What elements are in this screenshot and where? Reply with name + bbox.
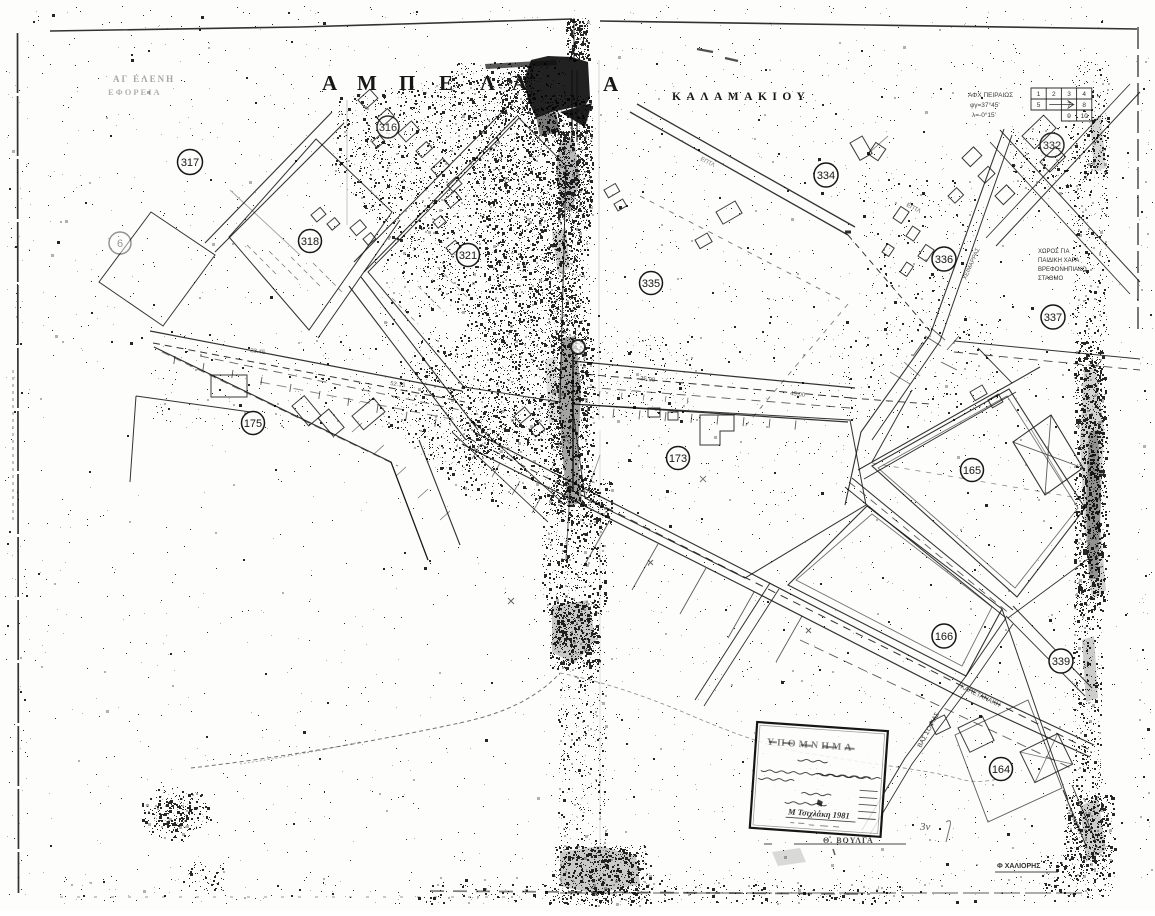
svg-text:7: 7 bbox=[1067, 102, 1071, 109]
svg-text:9: 9 bbox=[1067, 113, 1071, 120]
svg-text:ΑΦΧ ΠΕΙΡΑΙΩΣ: ΑΦΧ ΠΕΙΡΑΙΩΣ bbox=[968, 92, 1013, 99]
svg-text:Θ. ΒΟΥΛΓΑ: Θ. ΒΟΥΛΓΑ bbox=[823, 836, 874, 845]
svg-text:337: 337 bbox=[1044, 312, 1062, 324]
svg-text:334: 334 bbox=[817, 170, 835, 182]
svg-text:175: 175 bbox=[244, 418, 262, 430]
svg-text:6: 6 bbox=[117, 238, 123, 250]
svg-text:166: 166 bbox=[935, 631, 953, 643]
svg-text:4: 4 bbox=[1082, 91, 1086, 98]
svg-text:8: 8 bbox=[1082, 102, 1086, 109]
svg-text:ΑΓ ΕΛΕΝΗ: ΑΓ ΕΛΕΝΗ bbox=[113, 74, 175, 84]
svg-text:317: 317 bbox=[181, 157, 199, 169]
svg-text:Α: Α bbox=[512, 71, 528, 95]
svg-text:164: 164 bbox=[992, 764, 1010, 776]
svg-text:3: 3 bbox=[1067, 91, 1071, 98]
svg-text:336: 336 bbox=[935, 254, 953, 266]
svg-text:3ν: 3ν bbox=[919, 821, 931, 833]
svg-text:ΕΦΟΡΕΙΑ: ΕΦΟΡΕΙΑ bbox=[108, 87, 162, 97]
svg-text:ΚΑΛΑΜΑΚΙΟΥ: ΚΑΛΑΜΑΚΙΟΥ bbox=[672, 91, 810, 103]
svg-text:339: 339 bbox=[1052, 656, 1070, 668]
svg-text:ΠΑΙΔΙΚΗ ΧΑΡΑ: ΠΑΙΔΙΚΗ ΧΑΡΑ bbox=[1038, 258, 1079, 264]
svg-text:φγ=37°45': φγ=37°45' bbox=[970, 101, 1000, 109]
svg-text:165: 165 bbox=[963, 465, 981, 477]
svg-text:5: 5 bbox=[1037, 102, 1041, 109]
svg-text:Α: Α bbox=[603, 72, 619, 96]
svg-text:Ε: Ε bbox=[439, 71, 453, 95]
svg-text:335: 335 bbox=[642, 278, 660, 290]
svg-text:λ=-0°15': λ=-0°15' bbox=[972, 111, 996, 119]
svg-text:Α: Α bbox=[322, 71, 338, 95]
svg-text:318: 318 bbox=[301, 236, 319, 248]
svg-text:Π: Π bbox=[399, 71, 415, 95]
svg-text:ΒΡΕΦΟΝΗΠΙΑΚΟ: ΒΡΕΦΟΝΗΠΙΑΚΟ bbox=[1038, 267, 1087, 273]
svg-text:173: 173 bbox=[669, 453, 687, 465]
svg-text:Λ: Λ bbox=[480, 71, 495, 95]
svg-text:Φ ΧΑΛΙΟΡΗΣ: Φ ΧΑΛΙΟΡΗΣ bbox=[997, 863, 1040, 870]
svg-text:ΧΩΡΟΣ ΓΙΑ: ΧΩΡΟΣ ΓΙΑ bbox=[1038, 249, 1070, 255]
svg-text:321: 321 bbox=[459, 250, 477, 262]
svg-text:ΣΤΑΘΜΟ: ΣΤΑΘΜΟ bbox=[1038, 276, 1063, 282]
svg-text:1: 1 bbox=[1037, 91, 1041, 98]
svg-text:10: 10 bbox=[1081, 113, 1089, 120]
svg-text:2: 2 bbox=[1052, 91, 1056, 98]
